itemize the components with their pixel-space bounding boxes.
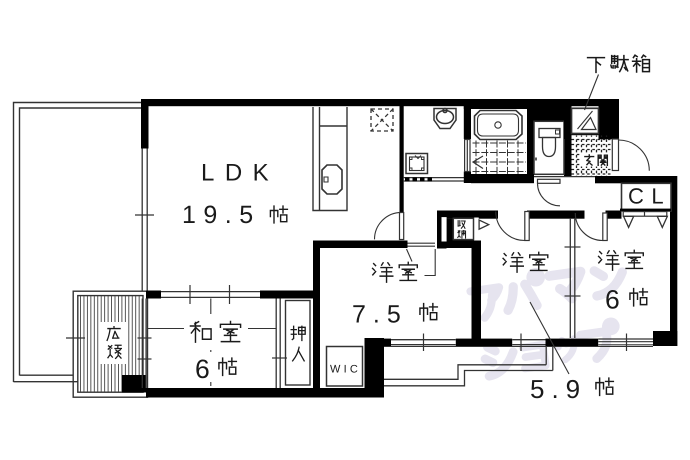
svg-text:6: 6 (195, 354, 210, 384)
svg-text:WIC: WIC (330, 364, 361, 376)
svg-text:5.9: 5.9 (530, 374, 587, 404)
svg-text:19.5: 19.5 (182, 201, 261, 229)
svg-text:7.5: 7.5 (352, 301, 408, 329)
svg-text:6: 6 (605, 285, 620, 315)
svg-text:CL: CL (628, 184, 671, 209)
svg-text:LDK: LDK (201, 160, 279, 187)
